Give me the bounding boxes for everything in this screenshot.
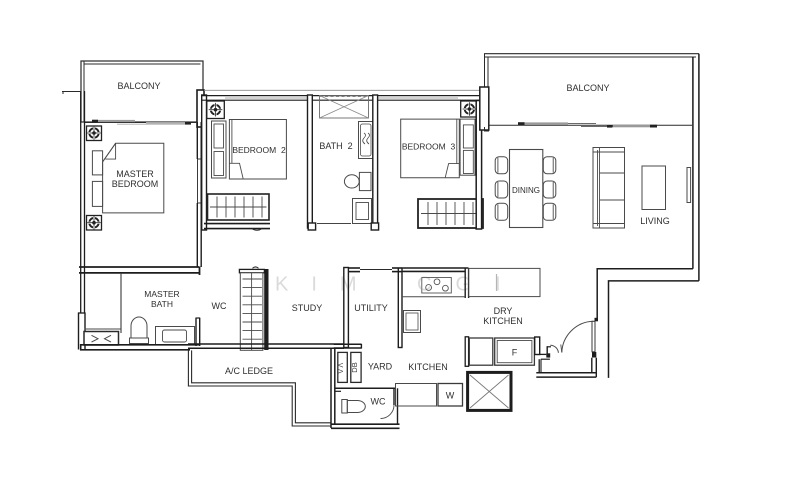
svg-text:KITCHEN: KITCHEN <box>483 316 523 326</box>
svg-text:VΛ: VΛ <box>338 361 345 373</box>
svg-text:BATH 2: BATH 2 <box>319 141 352 151</box>
svg-text:WC: WC <box>212 301 227 311</box>
svg-text:STUDY: STUDY <box>292 303 323 313</box>
svg-text:MASTER: MASTER <box>116 169 154 179</box>
svg-text:WC: WC <box>371 397 386 407</box>
svg-text:BALCONY: BALCONY <box>566 83 609 93</box>
svg-text:DINING: DINING <box>512 186 540 195</box>
svg-text:DB: DB <box>350 362 359 372</box>
svg-text:KIM: KIM <box>275 274 380 296</box>
svg-text:BATH: BATH <box>151 299 173 309</box>
svg-text:F: F <box>512 348 518 358</box>
svg-text:CGI: CGI <box>417 274 525 296</box>
svg-text:KITCHEN: KITCHEN <box>408 362 448 372</box>
svg-text:BEDROOM: BEDROOM <box>112 179 159 189</box>
svg-text:LIVING: LIVING <box>640 216 670 226</box>
svg-text:YARD: YARD <box>368 362 393 372</box>
svg-text:UTILITY: UTILITY <box>354 303 388 313</box>
svg-text:DRY: DRY <box>494 306 513 316</box>
svg-text:W: W <box>446 391 455 401</box>
svg-text:BEDROOM 3: BEDROOM 3 <box>402 142 456 152</box>
svg-text:A/C LEDGE: A/C LEDGE <box>225 366 273 376</box>
svg-text:BALCONY: BALCONY <box>117 81 160 91</box>
svg-text:BEDROOM 2: BEDROOM 2 <box>232 145 286 155</box>
svg-text:MASTER: MASTER <box>144 289 179 299</box>
